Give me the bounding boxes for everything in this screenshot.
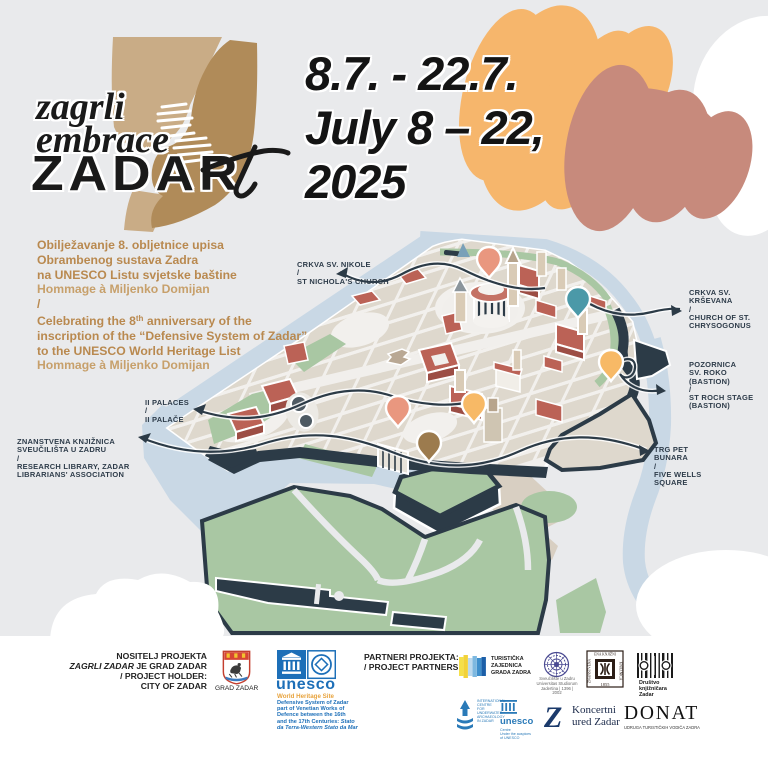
svg-text:ENA KNJIŽNI: ENA KNJIŽNI [594,651,617,656]
svg-text:ZNANSTVENA: ZNANSTVENA [588,659,592,684]
svg-text:KNJIŽNICA: KNJIŽNICA [619,662,624,681]
svg-text:1855: 1855 [601,682,611,687]
